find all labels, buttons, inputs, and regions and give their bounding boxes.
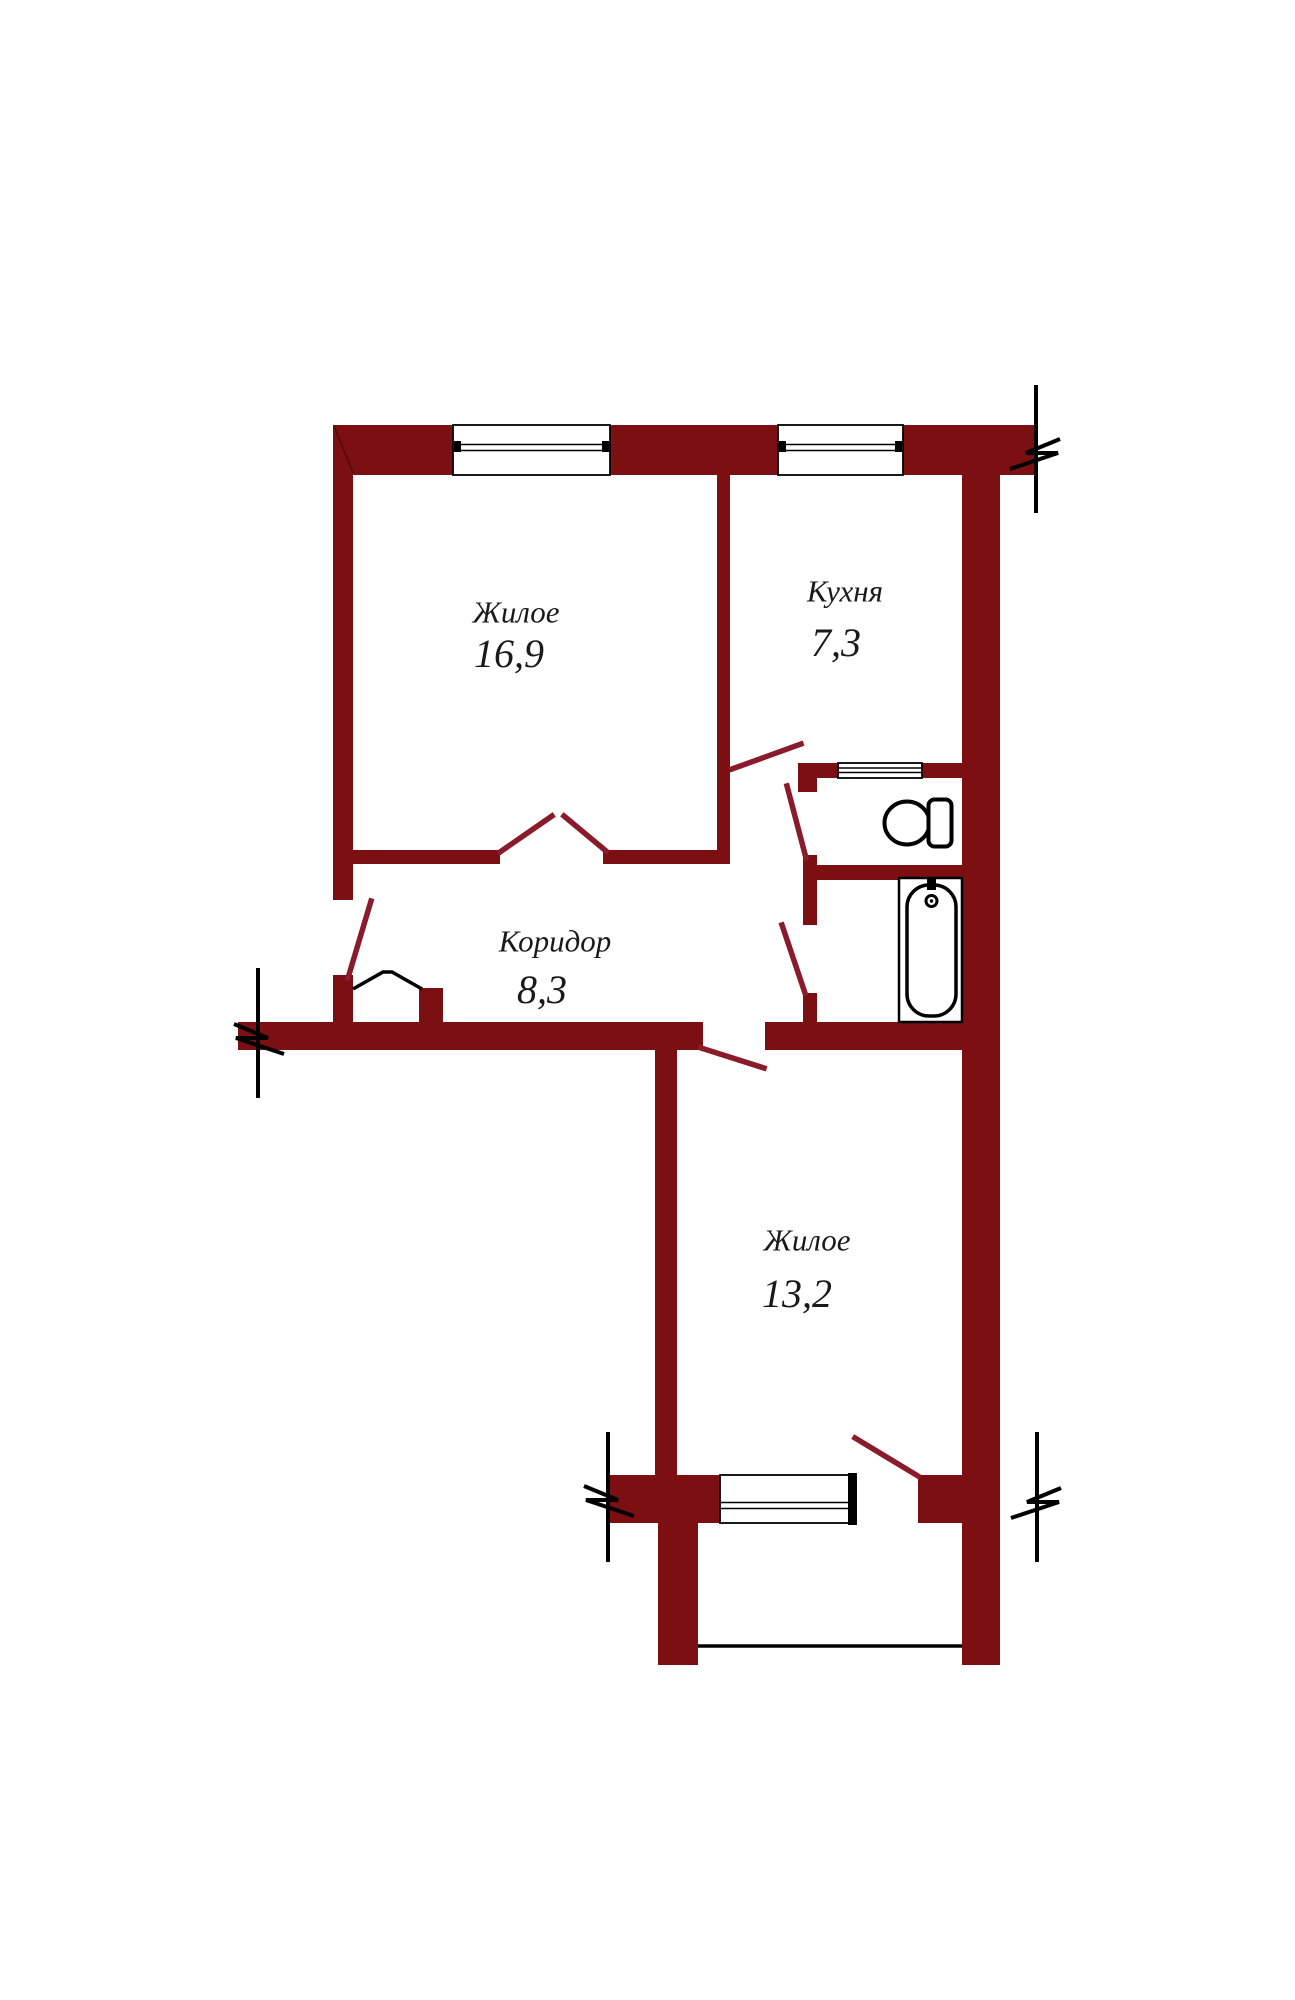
room-label-corridor: Коридор [499, 926, 612, 957]
corridor-bottom-wall [765, 1022, 1000, 1050]
sanitary-vertical-stub [803, 993, 817, 1022]
window-living-top [453, 425, 610, 475]
window-bottom-room [720, 1473, 857, 1525]
toilet-door-leaf [787, 786, 806, 858]
floor-plan-page: Жилое 16,9 Кухня 7,3 Коридор 8,3 Жилое 1… [0, 0, 1295, 2000]
room-label-living-bottom: Жилое [763, 1225, 850, 1256]
kitchen-door-leaf [732, 744, 801, 769]
room-area-living-top: 16,9 [474, 634, 544, 674]
room-label-kitchen: Кухня [807, 576, 883, 607]
room-area-living-bottom: 13,2 [762, 1274, 832, 1314]
living-room-door-leaf-left [500, 816, 552, 852]
section-mark-bottom-right [1011, 1432, 1061, 1562]
room-area-corridor: 8,3 [517, 970, 567, 1010]
toilet-door-jamb [798, 777, 817, 792]
room-label-living-top: Жилое [472, 597, 559, 628]
corridor-top-wall [603, 850, 730, 864]
bathtub-icon [899, 877, 962, 1022]
floor-plan-drawing [0, 0, 1295, 2000]
window-kitchen [778, 425, 903, 475]
walls [238, 425, 1037, 1665]
bottom-room-left-wall [655, 1050, 677, 1475]
kitchen-bottom-wall [798, 763, 838, 778]
bottom-wall-block [918, 1475, 1000, 1523]
bottom-room-door-leaf [701, 1048, 764, 1068]
vent-window-kitchen-toilet [838, 763, 922, 778]
entrance-door-leaf [348, 901, 371, 978]
bathroom-door-leaf [782, 925, 805, 993]
bottom-wall-block [610, 1475, 720, 1523]
entrance-door-pier [419, 988, 443, 1022]
living-room-door-leaf-right [564, 816, 606, 851]
left-wall-stub [333, 975, 353, 1022]
kitchen-bottom-wall [922, 763, 962, 778]
balcony-left-wall [658, 1523, 698, 1665]
living-kitchen-divider-wall [717, 475, 730, 864]
corridor-bottom-wall [238, 1022, 703, 1050]
bathtub-faucet-base [927, 877, 936, 890]
left-wall-upper [333, 475, 353, 900]
bathtub-faucet-dot [930, 899, 933, 902]
top-wall-segment [610, 425, 778, 475]
toilet-icon [885, 800, 952, 847]
balcony-door-leaf [855, 1438, 918, 1476]
room-area-kitchen: 7,3 [811, 623, 861, 663]
corridor-top-wall [353, 850, 500, 864]
entrance-door-swing [353, 972, 422, 989]
